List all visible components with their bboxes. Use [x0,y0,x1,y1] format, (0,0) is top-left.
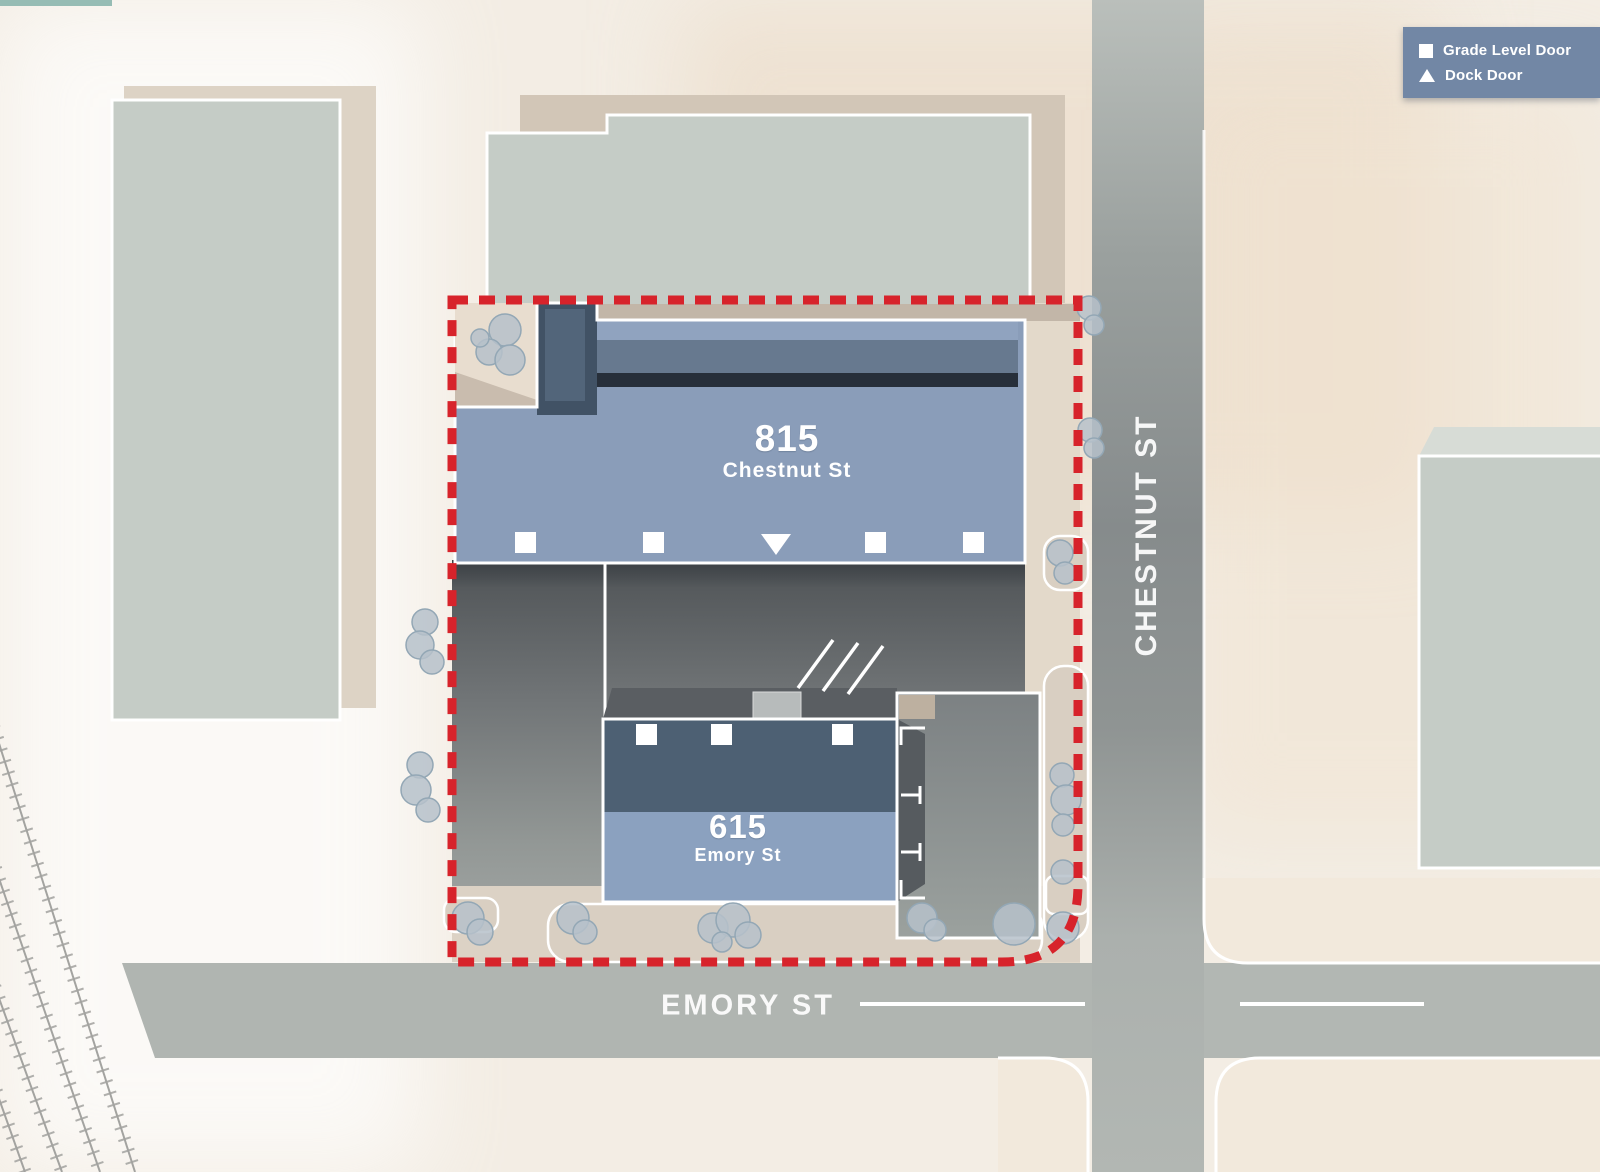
dock-wall-shadow [897,719,925,902]
building-815-band-light [597,320,1018,340]
sidewalk-corner-ne [1204,878,1600,963]
grade-level-door-icon [865,532,886,553]
site-plan-canvas: 815 Chestnut St 615 Emory St CHESTNUT ST… [0,0,1600,1172]
building-615-roof-shadow [603,688,897,719]
chestnut-street [1092,0,1204,1172]
site-plan-graphics [0,0,1600,1172]
grade-level-door-icon [643,532,664,553]
sidewalk-north-strip [597,304,1080,321]
building-815-band-mid [597,340,1018,373]
building-footprint [1419,456,1600,868]
emory-street-west [122,963,1092,1058]
dock-yard-pad [899,695,935,719]
building-815 [455,303,1025,563]
grade-level-door-icon [963,532,984,553]
map-edge-strip [0,0,112,6]
building-615-body-light [603,812,897,902]
sidewalk-corner-sw [998,1058,1088,1172]
grade-level-door-icon [636,724,657,745]
rooftop-unit [753,692,801,719]
building-815-tower-inner [545,309,585,401]
tree [993,903,1035,945]
legend-row-dock-door: Dock Door [1419,63,1600,88]
grade-level-door-icon [1419,44,1433,58]
context-building-northwest [112,86,376,720]
legend: Grade Level Door Dock Door [1403,27,1600,98]
dock-door-icon [1419,69,1435,82]
emory-street-east [1204,963,1600,1058]
legend-label: Dock Door [1445,67,1523,84]
legend-row-grade-level-door: Grade Level Door [1419,38,1600,63]
sidewalk-corner-se [1216,1058,1600,1172]
grade-level-door-icon [515,532,536,553]
building-footprint [112,100,340,720]
building-815-band-dark [597,373,1018,387]
building-bevel [1419,427,1600,456]
legend-label: Grade Level Door [1443,42,1571,59]
context-building-east [1419,427,1600,868]
tree [1051,860,1075,884]
grade-level-door-icon [711,724,732,745]
grade-level-door-icon [832,724,853,745]
